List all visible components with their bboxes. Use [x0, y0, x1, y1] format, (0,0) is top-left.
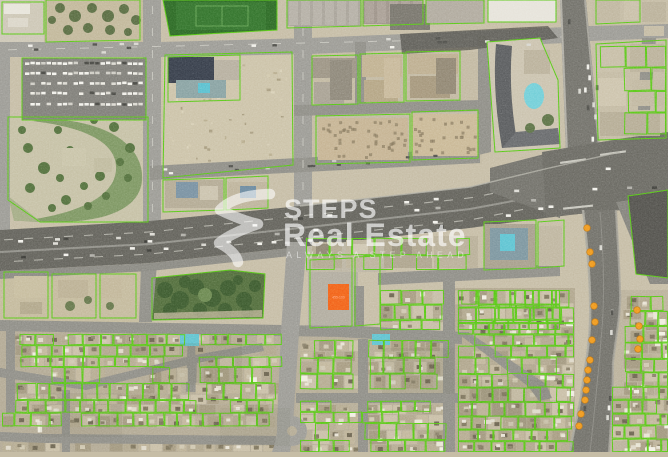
- svg-text:ALWAYS A STEP AHEAD: ALWAYS A STEP AHEAD: [286, 250, 468, 260]
- svg-text:Real Estate: Real Estate: [283, 217, 467, 253]
